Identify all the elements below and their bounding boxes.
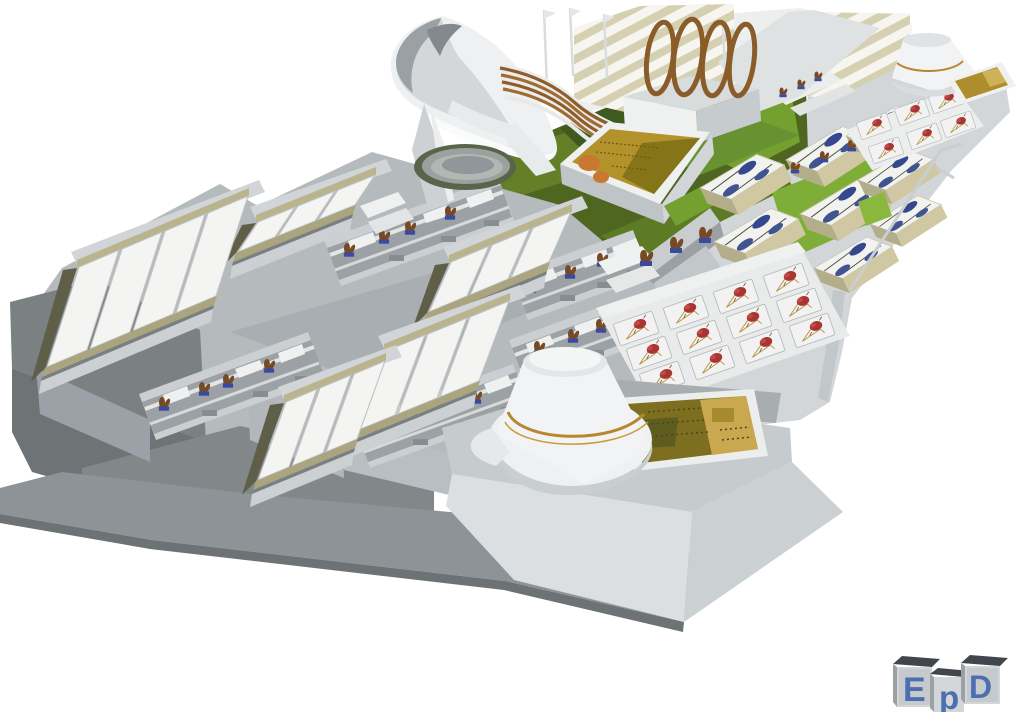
svg-text:p: p	[939, 679, 959, 712]
svg-text:E: E	[903, 671, 926, 709]
svg-text:D: D	[969, 669, 992, 705]
